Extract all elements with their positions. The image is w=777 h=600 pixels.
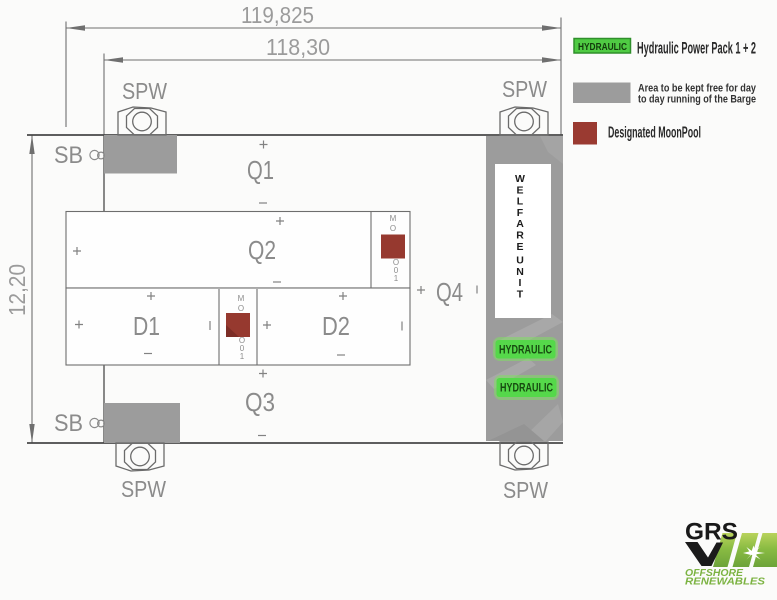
svg-text:D2: D2 (322, 311, 350, 341)
svg-text:R: R (516, 230, 524, 242)
svg-text:SB: SB (54, 410, 83, 437)
svg-text:W: W (515, 173, 525, 185)
svg-text:Q4: Q4 (436, 277, 463, 307)
svg-text:to day running of the Barge: to day running of the Barge (638, 94, 756, 106)
svg-text:1: 1 (240, 352, 245, 361)
svg-text:Hydraulic Power Pack 1 + 2: Hydraulic Power Pack 1 + 2 (637, 39, 756, 58)
svg-text:O: O (238, 304, 244, 313)
svg-text:M: M (390, 214, 397, 223)
svg-text:SPW: SPW (121, 476, 166, 502)
svg-text:U: U (516, 255, 524, 267)
svg-text:E: E (516, 184, 523, 196)
svg-text:F: F (517, 207, 524, 219)
svg-text:A: A (516, 218, 524, 230)
svg-text:118,30: 118,30 (266, 34, 330, 60)
svg-text:I: I (519, 277, 522, 289)
svg-text:HYDRAULIC: HYDRAULIC (499, 345, 552, 357)
svg-text:119,825: 119,825 (241, 2, 314, 28)
svg-text:M: M (238, 294, 245, 303)
svg-text:SPW: SPW (122, 78, 167, 104)
svg-text:SB: SB (54, 142, 83, 169)
svg-text:Q3: Q3 (245, 387, 275, 417)
svg-text:Q1: Q1 (247, 155, 274, 185)
svg-text:Designated MoonPool: Designated MoonPool (608, 125, 701, 142)
svg-text:HYDRAULIC: HYDRAULIC (578, 42, 627, 53)
svg-text:E: E (516, 241, 523, 253)
svg-text:T: T (517, 288, 524, 300)
svg-text:HYDRAULIC: HYDRAULIC (500, 383, 553, 395)
svg-text:1: 1 (394, 274, 399, 283)
svg-text:L: L (517, 196, 524, 208)
svg-text:12,20: 12,20 (4, 264, 30, 316)
svg-text:SPW: SPW (502, 76, 547, 102)
svg-text:Q2: Q2 (248, 235, 276, 265)
svg-text:D1: D1 (133, 311, 160, 341)
svg-text:N: N (516, 266, 524, 278)
svg-text:O: O (390, 224, 396, 233)
svg-text:SPW: SPW (503, 477, 548, 503)
svg-text:RENEWABLES: RENEWABLES (685, 577, 765, 588)
svg-text:GRS: GRS (685, 519, 738, 546)
